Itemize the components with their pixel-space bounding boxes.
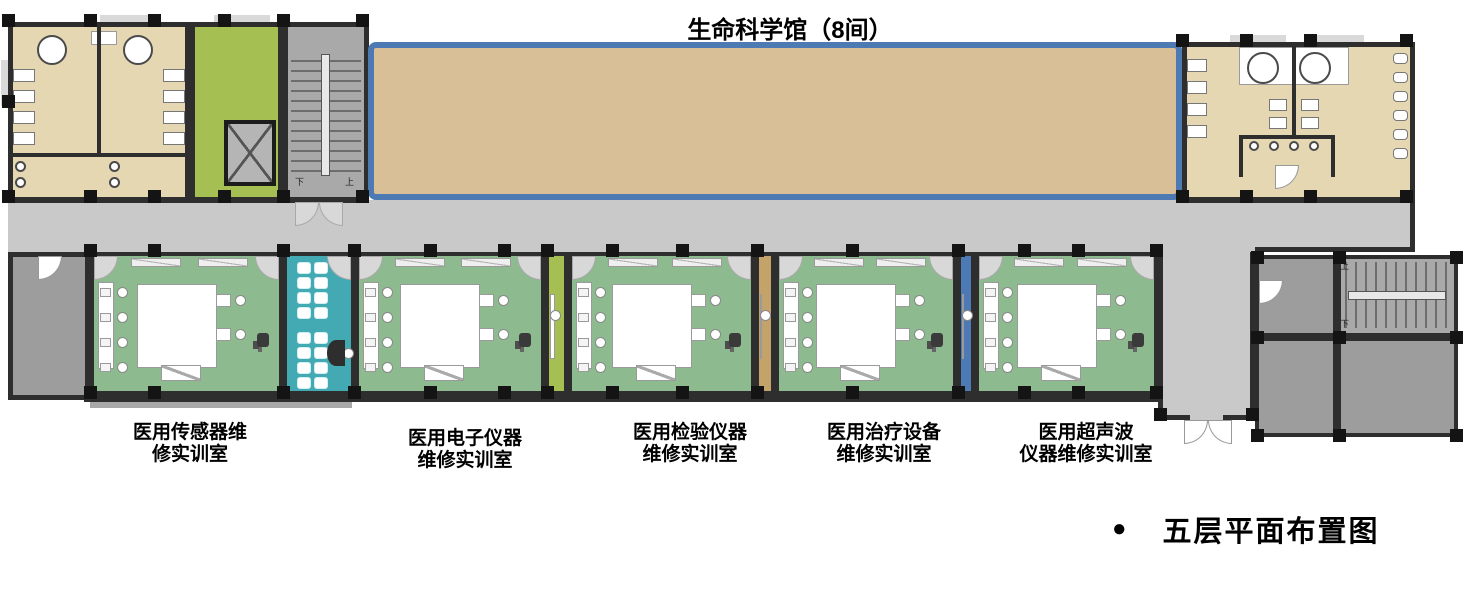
desk — [578, 363, 589, 372]
chair — [314, 347, 328, 359]
chair — [314, 262, 328, 274]
door-arc — [779, 256, 803, 280]
column — [1450, 331, 1463, 344]
divider-lime — [545, 252, 568, 395]
column — [1450, 429, 1463, 442]
faucet — [1309, 141, 1319, 151]
column — [1333, 331, 1346, 344]
door-arc — [327, 256, 351, 280]
column — [952, 244, 965, 257]
chair — [1002, 362, 1013, 373]
faucet — [1289, 141, 1299, 151]
toilet-stall — [1301, 117, 1319, 129]
chair — [595, 312, 606, 323]
column — [1240, 34, 1253, 47]
washstand — [91, 31, 117, 45]
room-label-inspection: 医用检验仪器 维修实训室 — [633, 422, 747, 466]
column — [846, 244, 859, 257]
column — [541, 244, 554, 257]
main-table — [612, 284, 692, 368]
desk — [100, 338, 111, 347]
chair — [297, 377, 311, 389]
desk — [785, 288, 796, 297]
chair — [382, 312, 393, 323]
column — [148, 14, 161, 27]
side-table — [216, 328, 231, 341]
chair — [382, 287, 393, 298]
room-label-ultrasound: 医用超声波 仪器维修实训室 — [1019, 422, 1152, 466]
classroom-ultrasound — [975, 252, 1158, 395]
column — [277, 14, 290, 27]
sink — [1247, 52, 1279, 84]
room-label-electronic: 医用电子仪器 维修实训室 — [408, 428, 522, 472]
toilet-stall — [1187, 81, 1207, 94]
chair — [382, 337, 393, 348]
wall — [1292, 47, 1296, 139]
chair — [802, 287, 813, 298]
chair — [297, 347, 311, 359]
column — [1154, 408, 1167, 421]
door-arc — [979, 256, 1003, 280]
whiteboard — [131, 258, 181, 267]
column — [1333, 429, 1346, 442]
sink — [123, 35, 153, 65]
desk — [785, 313, 796, 322]
stair-up-label: 上 — [345, 178, 354, 187]
toilet-stall — [13, 90, 35, 103]
whiteboard — [608, 258, 658, 267]
column — [2, 14, 15, 27]
column — [2, 95, 15, 108]
chair — [914, 295, 925, 306]
whiteboard — [1077, 258, 1127, 267]
desk — [985, 338, 996, 347]
desk — [365, 363, 376, 372]
door-arc — [359, 256, 383, 280]
door-arc — [727, 256, 751, 280]
chair — [550, 310, 561, 321]
classroom-therapy — [775, 252, 957, 395]
chair — [297, 362, 311, 374]
chair — [314, 307, 328, 319]
column — [148, 244, 161, 257]
urinal — [1393, 110, 1408, 121]
door-arc — [255, 256, 279, 280]
column — [356, 14, 369, 27]
column — [1246, 408, 1259, 421]
column — [84, 190, 97, 203]
whiteboard — [876, 258, 926, 267]
chair — [297, 332, 311, 344]
restroom-right — [1182, 42, 1415, 202]
urinal — [1393, 148, 1408, 159]
door-arc — [1275, 165, 1299, 189]
toilet-stall — [163, 111, 185, 124]
desk — [785, 363, 796, 372]
small-table — [1041, 365, 1081, 381]
toilet-stall — [1301, 99, 1319, 111]
urinal — [15, 177, 26, 188]
column — [1450, 251, 1463, 264]
column — [1176, 190, 1189, 203]
urinal — [15, 161, 26, 172]
chair — [297, 277, 311, 289]
classroom-electronic — [355, 252, 545, 395]
caption-text: 五层平面布置图 — [1163, 508, 1380, 550]
chair — [914, 329, 925, 340]
room-label-therapy: 医用治疗设备 维修实训室 — [827, 422, 941, 466]
desk — [578, 313, 589, 322]
column — [348, 386, 361, 399]
side-table — [479, 328, 494, 341]
chair — [595, 362, 606, 373]
urinal — [1393, 53, 1408, 64]
stair-down-label: 下 — [295, 178, 304, 187]
column — [84, 244, 97, 257]
column — [84, 14, 97, 27]
chair — [498, 329, 509, 340]
column — [277, 386, 290, 399]
side-table — [1096, 328, 1111, 341]
column — [751, 386, 764, 399]
main-table — [816, 284, 896, 368]
desk — [100, 313, 111, 322]
sink — [1299, 52, 1331, 84]
column — [606, 244, 619, 257]
column — [1333, 251, 1346, 264]
chair — [117, 362, 128, 373]
corridor — [8, 200, 1415, 252]
floor-plan: 生命科学馆（8间） 下 上 上 下 — [0, 0, 1467, 600]
chair — [297, 307, 311, 319]
toilet-stall — [163, 90, 185, 103]
chair — [710, 295, 721, 306]
desk — [985, 288, 996, 297]
exit-lobby — [1158, 252, 1255, 420]
toilet-stall — [1187, 59, 1207, 72]
column — [84, 386, 97, 399]
column — [424, 386, 437, 399]
column — [218, 14, 231, 27]
small-table — [424, 365, 464, 381]
main-table — [1017, 284, 1097, 368]
desk — [100, 363, 111, 372]
column — [1304, 34, 1317, 47]
desk — [365, 313, 376, 322]
chair — [802, 362, 813, 373]
column — [2, 190, 15, 203]
classroom-inspection — [568, 252, 755, 395]
chair — [498, 295, 509, 306]
chair — [117, 287, 128, 298]
desk — [365, 338, 376, 347]
gray-room-sb-right — [1337, 337, 1458, 437]
work-counter — [962, 294, 964, 359]
desk — [100, 288, 111, 297]
column — [356, 190, 369, 203]
side-table — [895, 328, 910, 341]
chair — [1002, 287, 1013, 298]
column — [1072, 386, 1085, 399]
column — [1251, 331, 1264, 344]
column — [1400, 34, 1413, 47]
podium — [327, 340, 345, 366]
chair — [314, 292, 328, 304]
faucet — [1269, 141, 1279, 151]
column — [498, 386, 511, 399]
column — [1072, 244, 1085, 257]
door-arc — [94, 256, 118, 280]
chair — [117, 312, 128, 323]
small-table — [840, 365, 880, 381]
page-title: 生命科学馆（8间） — [600, 10, 980, 45]
life-science-hall — [368, 42, 1182, 200]
side-table — [479, 294, 494, 307]
exit-door-arc — [1184, 420, 1208, 444]
chair — [314, 277, 328, 289]
column — [277, 244, 290, 257]
urinal — [1393, 72, 1408, 83]
column — [676, 244, 689, 257]
column — [1150, 386, 1163, 399]
chair — [297, 262, 311, 274]
side-table — [216, 294, 231, 307]
small-table — [161, 365, 201, 381]
desk — [578, 338, 589, 347]
chair — [117, 337, 128, 348]
bullet-icon: ● — [1112, 517, 1127, 541]
wall — [13, 153, 185, 157]
column — [846, 386, 859, 399]
column — [606, 386, 619, 399]
column — [148, 190, 161, 203]
main-table — [400, 284, 480, 368]
chair — [314, 377, 328, 389]
chair — [595, 287, 606, 298]
toilet-stall — [163, 132, 185, 145]
column — [541, 386, 554, 399]
side-table — [1096, 294, 1111, 307]
divider-tan — [755, 252, 775, 395]
whiteboard — [1014, 258, 1064, 267]
chair — [802, 312, 813, 323]
small-table — [636, 365, 676, 381]
desk — [985, 363, 996, 372]
wall — [1239, 135, 1243, 177]
equipment-icon — [931, 333, 943, 347]
column — [1018, 386, 1031, 399]
wall — [1239, 135, 1335, 139]
chair — [710, 329, 721, 340]
column — [424, 244, 437, 257]
column — [498, 244, 511, 257]
restroom-left — [8, 22, 190, 202]
faucet — [1249, 141, 1259, 151]
side-table — [895, 294, 910, 307]
door-arc — [929, 256, 953, 280]
gray-room-sb-left — [1255, 337, 1337, 437]
side-table — [691, 328, 706, 341]
urinal — [1393, 129, 1408, 140]
work-counter — [550, 294, 555, 359]
toilet-stall — [1187, 103, 1207, 116]
equipment-icon — [1132, 333, 1144, 347]
chair — [314, 362, 328, 374]
divider-blue — [957, 252, 975, 395]
stair-rail — [1348, 291, 1446, 300]
caption: ● 五层平面布置图 — [1112, 508, 1380, 550]
whiteboard — [198, 258, 248, 267]
equipment-icon — [519, 333, 531, 347]
wall — [1331, 135, 1335, 177]
column — [676, 386, 689, 399]
toilet-stall — [13, 69, 35, 82]
chair — [235, 329, 246, 340]
equipment-icon — [729, 333, 741, 347]
exit-door-arc — [1208, 420, 1232, 444]
toilet-stall — [13, 111, 35, 124]
toilet-stall — [1269, 99, 1287, 111]
column — [218, 190, 231, 203]
column — [1251, 429, 1264, 442]
door-arc — [1130, 256, 1154, 280]
stair-down-label: 下 — [1340, 320, 1349, 329]
chair — [1002, 337, 1013, 348]
urinal — [109, 161, 120, 172]
classroom-sensor — [90, 252, 283, 395]
chair — [297, 292, 311, 304]
chair — [235, 295, 246, 306]
whiteboard — [672, 258, 722, 267]
chair — [314, 332, 328, 344]
urinal — [109, 177, 120, 188]
column — [1018, 244, 1031, 257]
main-table — [137, 284, 217, 368]
desk — [985, 313, 996, 322]
column — [952, 386, 965, 399]
column — [1400, 190, 1413, 203]
toilet-stall — [1187, 125, 1207, 138]
chair — [802, 337, 813, 348]
chair — [595, 337, 606, 348]
chair — [1115, 329, 1126, 340]
whiteboard — [461, 258, 511, 267]
column — [1304, 190, 1317, 203]
toilet-stall — [13, 132, 35, 145]
column — [348, 244, 361, 257]
column — [751, 244, 764, 257]
urinal — [1393, 91, 1408, 102]
column — [1176, 34, 1189, 47]
column — [1150, 244, 1163, 257]
desk — [365, 288, 376, 297]
chair — [382, 362, 393, 373]
teal-seminar-room — [283, 252, 355, 395]
door-arc — [517, 256, 541, 280]
desk — [785, 338, 796, 347]
column — [1251, 251, 1264, 264]
column — [1240, 190, 1253, 203]
door-arc — [572, 256, 596, 280]
sink — [37, 35, 67, 65]
toilet-stall — [163, 69, 185, 82]
column — [148, 386, 161, 399]
chair — [760, 310, 771, 321]
whiteboard — [814, 258, 864, 267]
equipment-icon — [257, 333, 269, 347]
wall — [97, 27, 101, 153]
chair — [1002, 312, 1013, 323]
chair — [962, 310, 973, 321]
work-counter — [760, 294, 762, 359]
side-table — [691, 294, 706, 307]
whiteboard — [395, 258, 445, 267]
stair-rail — [321, 54, 330, 176]
room-label-sensor: 医用传感器维 修实训室 — [133, 422, 247, 466]
toilet-stall — [1269, 117, 1287, 129]
elevator — [224, 120, 276, 186]
desk — [578, 288, 589, 297]
chair — [1115, 295, 1126, 306]
column — [277, 190, 290, 203]
